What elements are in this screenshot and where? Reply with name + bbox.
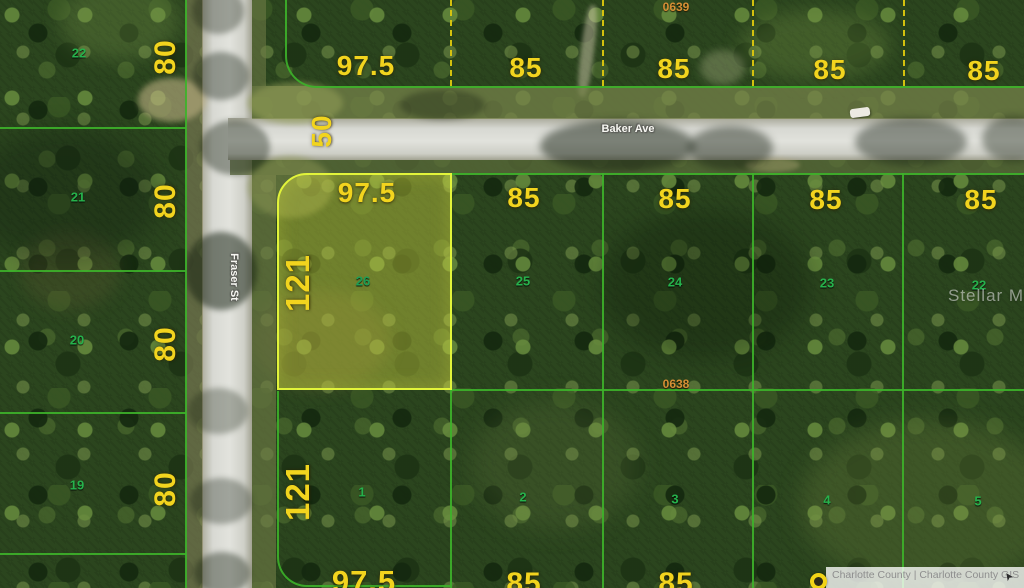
- lot-number-label: 4: [823, 493, 830, 508]
- aerial-parcel-map: 97.5 85 85 85 85 97.5 85 85 85 85 97.5 8…: [0, 0, 1024, 588]
- lot-depth-label: 121: [279, 463, 317, 521]
- parcel-boundary-line: [450, 389, 1024, 391]
- lot-dimension-label: 80: [149, 326, 183, 361]
- tree-shadow: [185, 232, 257, 310]
- tree-shadow: [855, 118, 967, 166]
- parcel-boundary-line: [752, 173, 754, 588]
- lot-dimension-label: 85: [509, 52, 542, 84]
- parcel-boundary-line: [185, 0, 187, 588]
- road-shoulder: [252, 175, 276, 588]
- block-id-label: 0639: [663, 0, 690, 14]
- tree-shadow: [200, 120, 270, 175]
- street-name-label: Baker Ave: [602, 123, 655, 135]
- lot-dimension-label: 85: [658, 567, 693, 588]
- tree-shadow: [194, 552, 250, 588]
- block-id-label: 0638: [663, 377, 690, 391]
- lot-dimension-label: 80: [149, 471, 183, 506]
- lot-separator-dashed-line: [903, 0, 905, 86]
- lot-dimension-label: 85: [506, 567, 541, 588]
- lot-separator-dashed-line: [752, 0, 754, 86]
- parcel-boundary-line: [0, 412, 186, 414]
- lot-dimension-label: 85: [967, 55, 1000, 87]
- lot-dimension-label: 97.5: [332, 564, 396, 588]
- parcel-boundary-line: [0, 270, 186, 272]
- lot-depth-label: 121: [279, 254, 317, 312]
- attribution-text: Charlotte County | Charlotte County GIS: [832, 569, 1024, 581]
- parcel-boundary-line: [0, 127, 186, 129]
- parcel-boundary-line: [0, 553, 186, 555]
- lot-number-label: 24: [668, 275, 682, 290]
- lot-dimension-label: 80: [149, 183, 183, 218]
- lot-dimension-label: 85: [657, 53, 690, 85]
- tree-shadow: [190, 478, 252, 524]
- lot-number-label: 2: [519, 490, 526, 505]
- parcel-boundary-line: [450, 173, 1024, 175]
- terrain-patch: [470, 400, 640, 530]
- road-width-label: 50: [306, 114, 338, 147]
- lot-separator-dashed-line: [602, 0, 604, 86]
- parcel-boundary-line: [285, 0, 1024, 88]
- tree-shadow: [188, 388, 248, 434]
- lot-number-label: 20: [70, 333, 84, 348]
- lot-number-label: 5: [974, 494, 981, 509]
- lot-number-label: 1: [358, 485, 365, 500]
- terrain-patch: [600, 210, 810, 360]
- lot-dimension-label: 97.5: [338, 177, 397, 209]
- tree-shadow: [688, 126, 773, 170]
- parcel-boundary-line: [902, 173, 904, 588]
- lot-dimension-label: 80: [149, 39, 183, 74]
- lot-dimension-label: 97.5: [337, 50, 396, 82]
- lot-dimension-label: 85: [964, 184, 997, 216]
- stellar-mls-watermark: Stellar MLS: [948, 286, 1024, 306]
- road-shoulder: [252, 0, 266, 86]
- lot-dimension-label: 85: [658, 183, 691, 215]
- tree-shadow: [400, 90, 485, 120]
- lot-number-label: 25: [516, 274, 530, 289]
- lot-number-label: 26: [356, 274, 370, 289]
- street-name-label: Fraser St: [228, 253, 240, 301]
- lot-dimension-label: 85: [507, 182, 540, 214]
- road-shoulder: [252, 86, 1024, 119]
- lot-number-label: 21: [71, 190, 85, 205]
- lot-dimension-label: 85: [813, 54, 846, 86]
- lot-number-label: 22: [72, 46, 86, 61]
- lot-separator-dashed-line: [450, 0, 452, 86]
- lot-dimension-label: 85: [809, 184, 842, 216]
- tree-shadow: [193, 52, 249, 100]
- lot-number-label: 23: [820, 276, 834, 291]
- parcel-boundary-line: [602, 173, 604, 588]
- lot-number-label: 3: [671, 492, 678, 507]
- lot-number-label: 19: [70, 478, 84, 493]
- map-pin-icon: [810, 573, 827, 588]
